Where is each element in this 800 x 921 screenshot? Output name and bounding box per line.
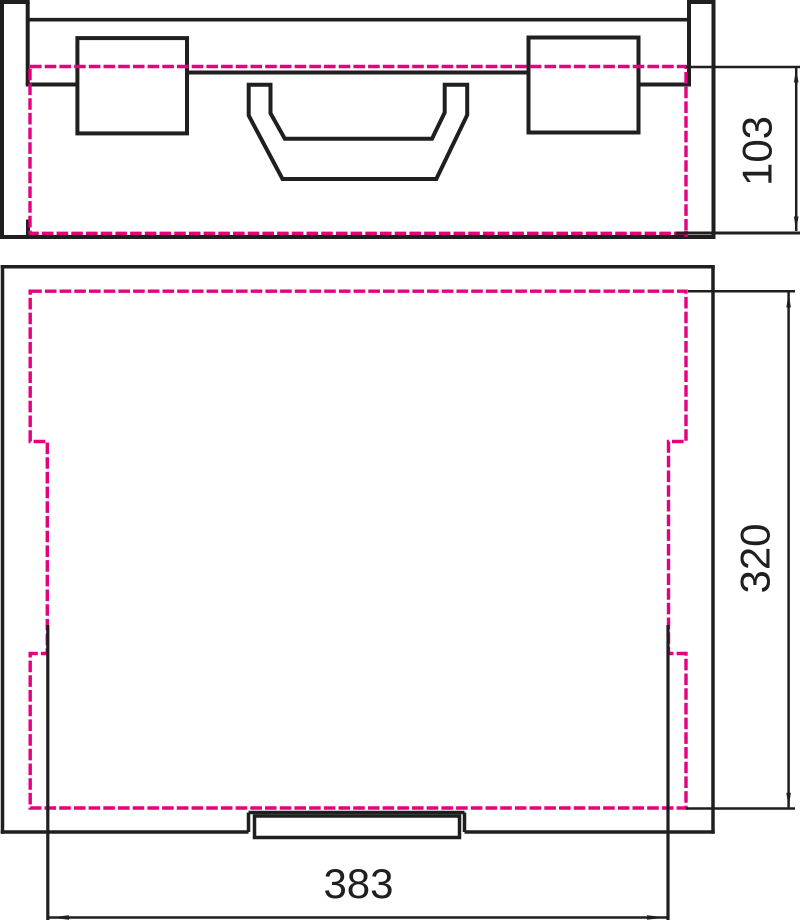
svg-text:320: 320 [732,523,779,593]
svg-text:103: 103 [734,116,781,186]
svg-text:383: 383 [323,860,393,907]
